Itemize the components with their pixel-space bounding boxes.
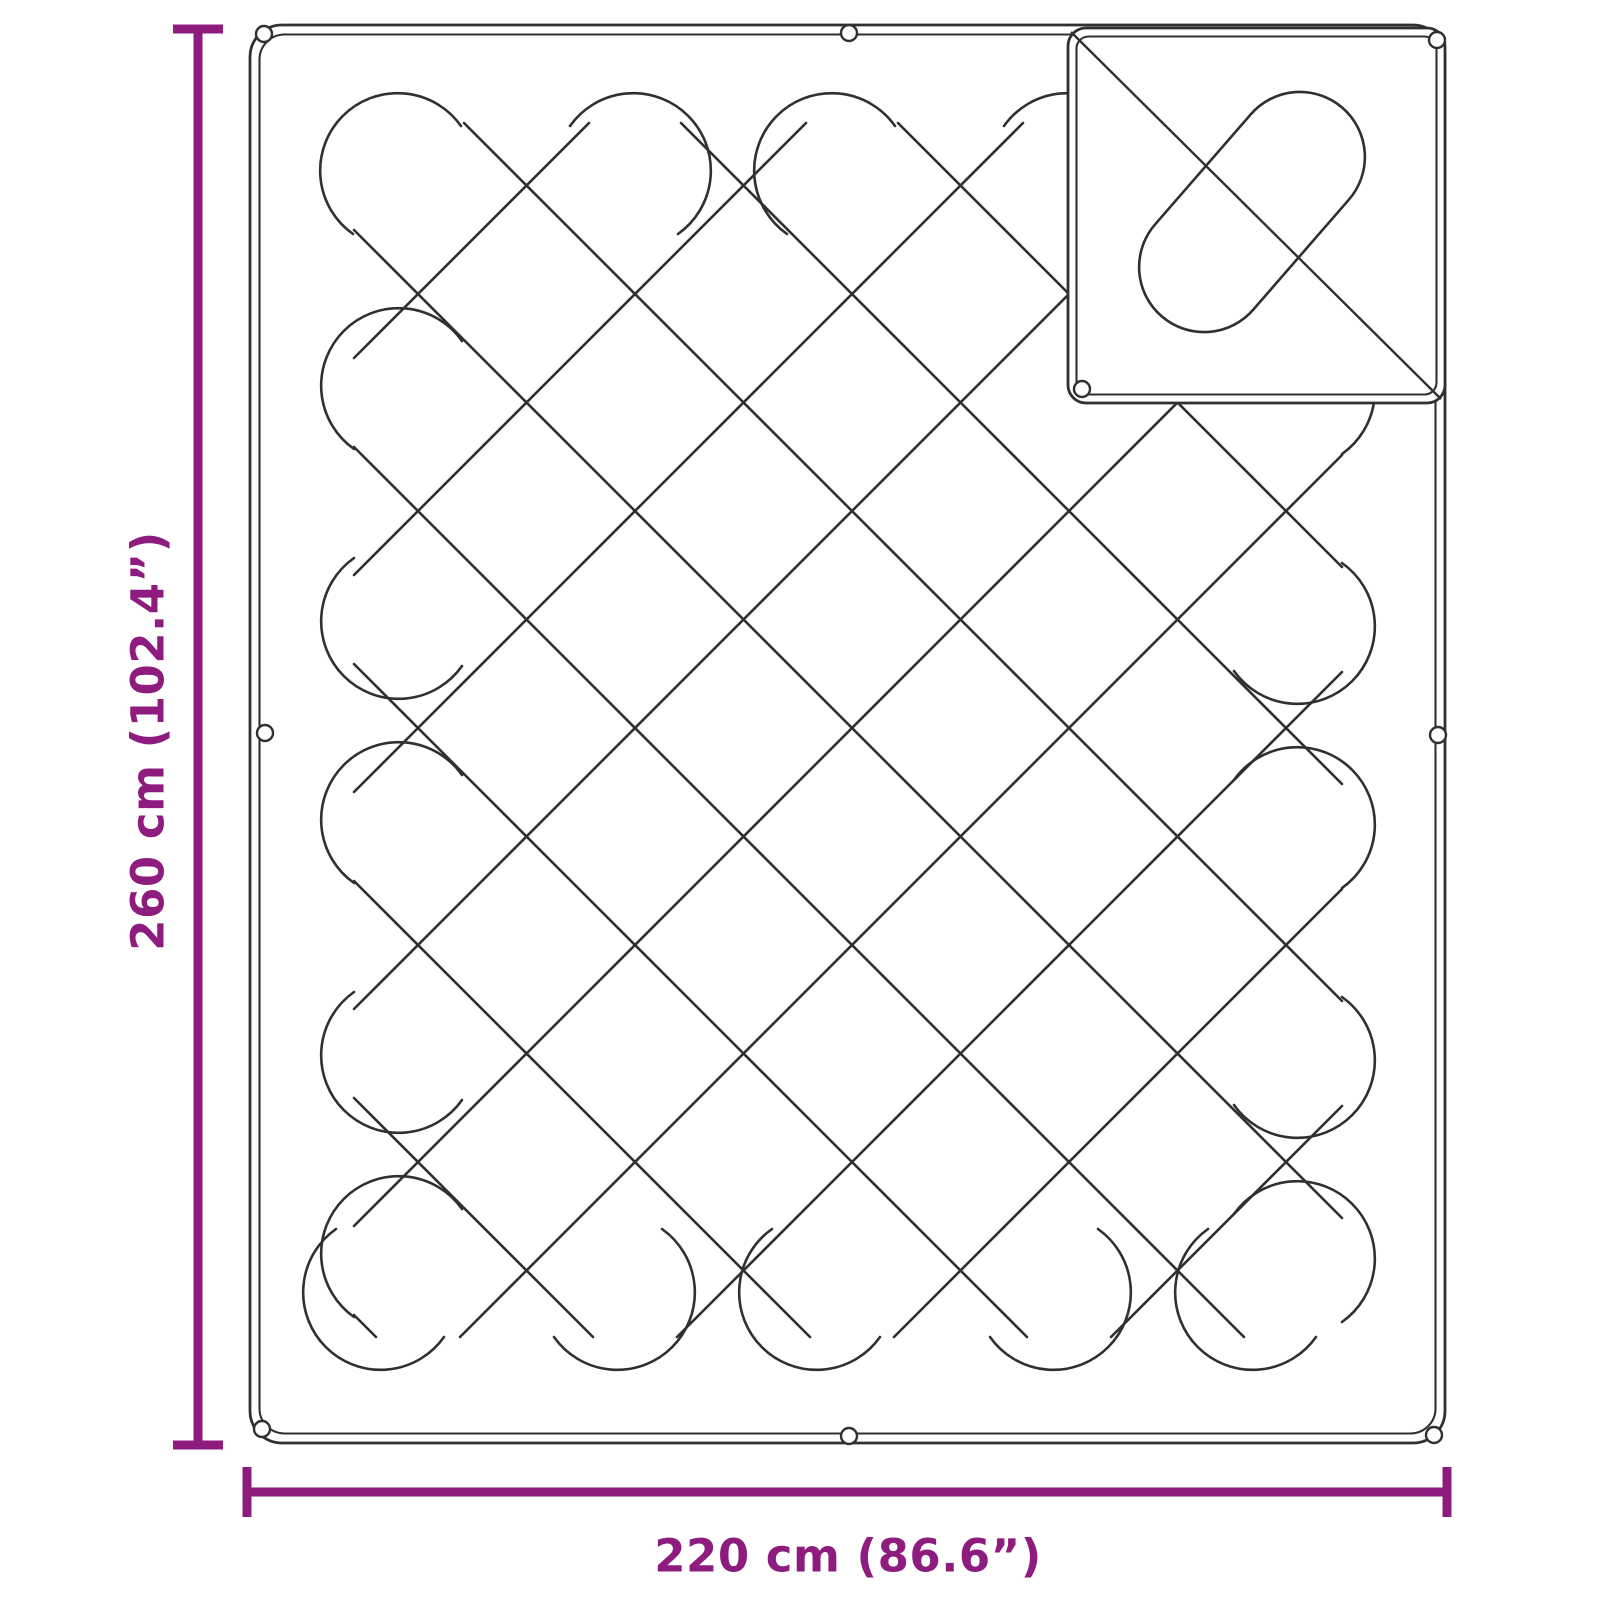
corner-flap <box>1068 28 1445 403</box>
vertical-dimension-line <box>173 29 223 1445</box>
eyelet-snap <box>841 1428 857 1444</box>
eyelet-snap <box>1426 1427 1442 1443</box>
width-dimension-label: 220 cm (86.6”) <box>654 1530 1042 1583</box>
horizontal-dimension-line <box>247 1467 1447 1517</box>
eyelet-snap <box>254 1421 270 1437</box>
eyelet-snap <box>841 25 857 41</box>
eyelet-snap <box>1430 727 1446 743</box>
eyelet-snap <box>257 725 273 741</box>
eyelet-snap <box>1429 32 1445 48</box>
height-dimension-label: 260 cm (102.4”) <box>122 531 175 950</box>
eyelet-snap <box>1074 381 1090 397</box>
blanket-diagram-canvas <box>0 0 1600 1600</box>
eyelet-snap <box>256 26 272 42</box>
product-dimension-diagram: 260 cm (102.4”) 220 cm (86.6”) <box>0 0 1600 1600</box>
